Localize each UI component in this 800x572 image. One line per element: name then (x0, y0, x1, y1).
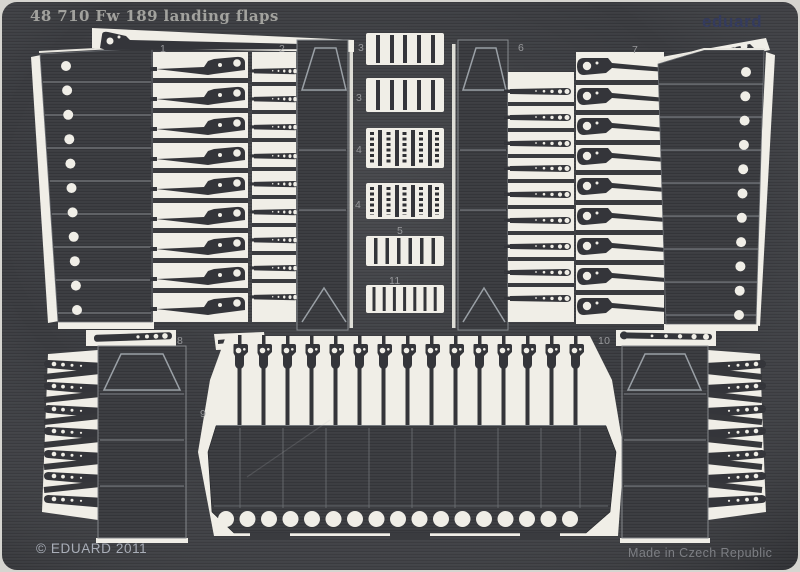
brand-logo: eduard (702, 12, 762, 31)
part-number-9: 9 (200, 408, 206, 420)
top-right-flap-skin-panel (656, 38, 775, 331)
central-right-spar-panel (452, 40, 508, 330)
part2-strip-column (250, 52, 298, 322)
central-left-spar-panel (297, 40, 353, 330)
made-in-text: Made in Czech Republic (628, 546, 772, 560)
top-left-flap-skin-panel (31, 46, 154, 329)
part-number-6: 6 (518, 42, 524, 54)
part-number-11: 11 (389, 275, 401, 287)
part-number-8: 8 (177, 335, 183, 347)
part1-hinge-blade-column (150, 52, 248, 322)
part-number-7: 7 (632, 44, 638, 56)
bottom-center-flap-group (198, 335, 624, 539)
part-number-3a: 3 (358, 42, 364, 54)
part-number-2: 2 (279, 43, 285, 55)
part-number-3b: 3 (356, 92, 362, 104)
part-number-4b: 4 (355, 199, 361, 211)
part7-hinge-blade-column (576, 52, 673, 324)
part-number-4a: 4 (356, 144, 362, 156)
copyright-text: © EDUARD 2011 (36, 541, 147, 556)
part6-strip-column (504, 72, 574, 322)
part-number-10: 10 (598, 335, 610, 347)
part-number-5: 5 (397, 225, 403, 237)
catalog-title: 48 710 Fw 189 landing flaps (30, 7, 279, 25)
photo-etch-fret-scan: 1 2 3 3 4 4 5 11 6 7 8 9 10 48 710 Fw 18… (0, 0, 800, 572)
bottom-right-flap-group (616, 330, 766, 543)
fret-photo: 1 2 3 3 4 4 5 11 6 7 8 9 10 48 710 Fw 18… (0, 0, 800, 572)
part-number-1: 1 (160, 43, 166, 55)
flap-hole-row (218, 511, 578, 527)
